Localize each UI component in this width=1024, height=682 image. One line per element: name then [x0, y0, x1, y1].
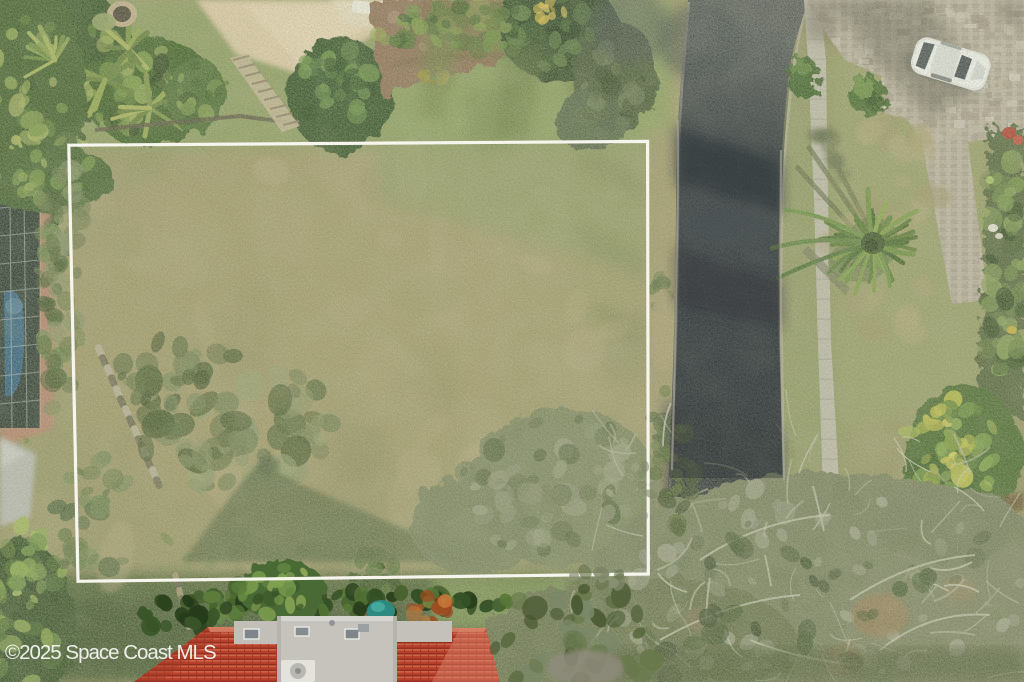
svg-text:©2025 Space Coast MLS: ©2025 Space Coast MLS — [5, 641, 216, 664]
